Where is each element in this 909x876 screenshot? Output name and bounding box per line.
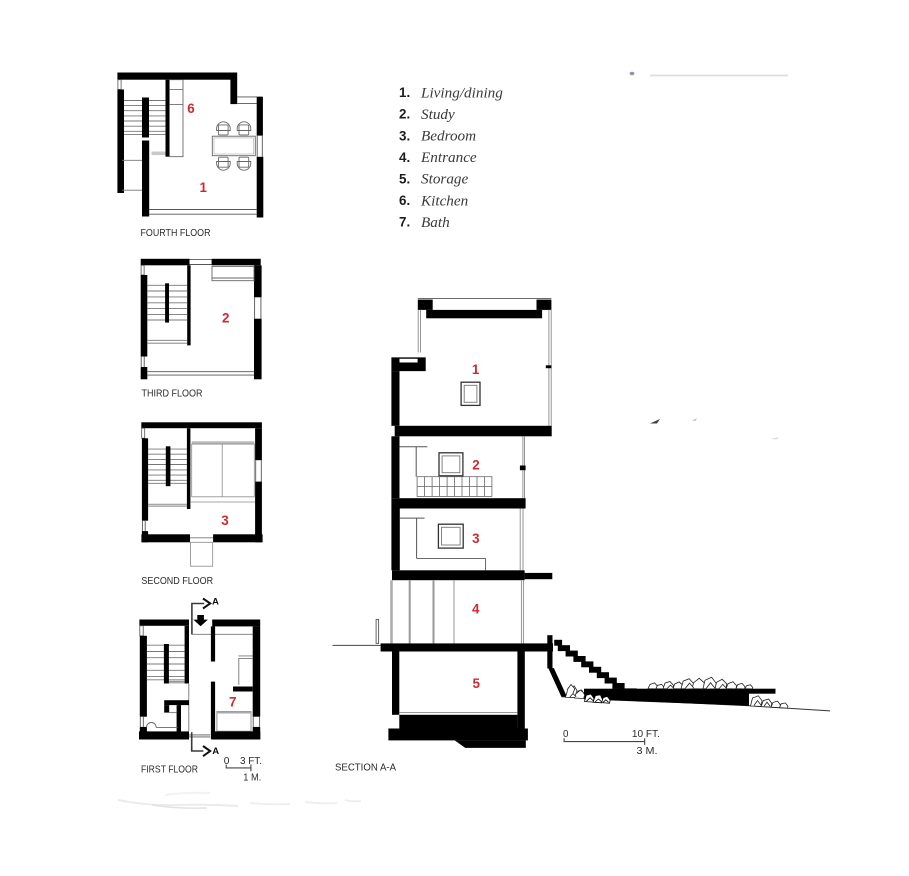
svg-text:3: 3 <box>221 513 228 528</box>
svg-text:1.: 1. <box>399 85 410 100</box>
svg-text:2.: 2. <box>399 107 410 122</box>
svg-text:FOURTH FLOOR: FOURTH FLOOR <box>141 228 211 239</box>
svg-text:Storage: Storage <box>421 171 469 188</box>
svg-text:3: 3 <box>472 531 479 546</box>
svg-text:4.: 4. <box>399 150 410 165</box>
svg-text:SECOND FLOOR: SECOND FLOOR <box>141 576 213 587</box>
svg-text:Study: Study <box>421 106 455 123</box>
svg-text:A: A <box>212 596 219 607</box>
svg-text:1: 1 <box>472 362 480 377</box>
svg-text:A: A <box>212 746 219 757</box>
svg-text:Bath: Bath <box>421 214 450 231</box>
svg-text:10 FT.: 10 FT. <box>632 729 660 740</box>
svg-text:2: 2 <box>222 311 229 326</box>
svg-text:2: 2 <box>472 458 479 473</box>
svg-text:1 M.: 1 M. <box>243 773 261 784</box>
svg-text:1: 1 <box>200 180 208 195</box>
svg-text:THIRD FLOOR: THIRD FLOOR <box>142 389 203 400</box>
svg-text:4: 4 <box>472 602 480 617</box>
svg-text:5: 5 <box>473 676 481 691</box>
svg-text:Kitchen: Kitchen <box>420 192 468 209</box>
svg-text:6.: 6. <box>399 193 410 208</box>
svg-text:0: 0 <box>224 756 230 767</box>
svg-text:3.: 3. <box>399 128 410 143</box>
svg-text:SECTION A-A: SECTION A-A <box>335 762 396 773</box>
svg-text:0: 0 <box>563 729 569 740</box>
svg-text:7: 7 <box>229 694 236 709</box>
svg-text:3 M.: 3 M. <box>637 746 658 757</box>
svg-text:5.: 5. <box>399 172 410 187</box>
svg-text:Bedroom: Bedroom <box>421 128 476 145</box>
svg-text:Living/dining: Living/dining <box>420 84 503 101</box>
svg-text:7.: 7. <box>399 215 410 230</box>
svg-text:6: 6 <box>187 101 194 116</box>
svg-text:Entrance: Entrance <box>420 149 477 166</box>
svg-text:FIRST FLOOR: FIRST FLOOR <box>141 764 198 775</box>
